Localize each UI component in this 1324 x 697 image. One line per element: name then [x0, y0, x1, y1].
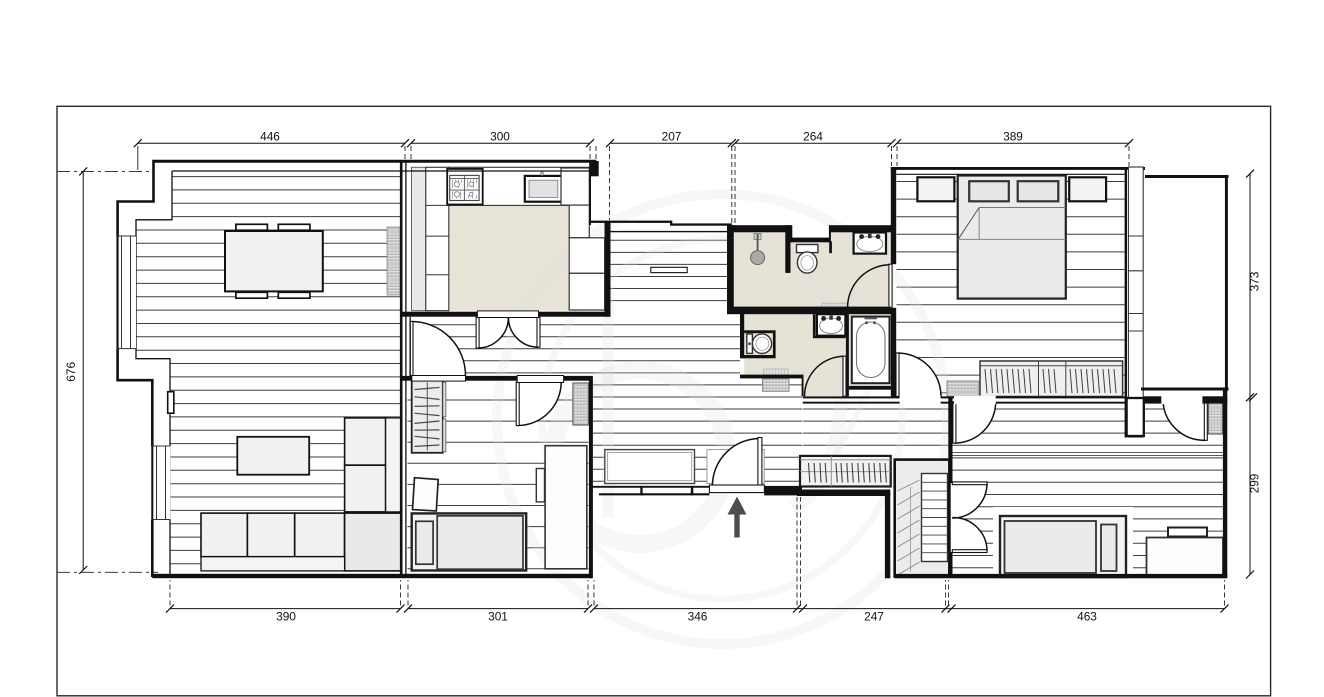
svg-text:676: 676	[64, 361, 78, 381]
svg-text:373: 373	[1248, 271, 1262, 291]
svg-text:299: 299	[1248, 473, 1262, 493]
svg-text:300: 300	[490, 130, 510, 144]
svg-text:207: 207	[662, 130, 682, 144]
svg-text:463: 463	[1077, 610, 1097, 624]
svg-text:390: 390	[276, 610, 296, 624]
svg-text:264: 264	[803, 130, 823, 144]
svg-text:301: 301	[488, 610, 508, 624]
svg-text:446: 446	[260, 130, 280, 144]
svg-text:346: 346	[688, 610, 708, 624]
svg-text:389: 389	[1003, 130, 1023, 144]
svg-text:247: 247	[864, 610, 884, 624]
